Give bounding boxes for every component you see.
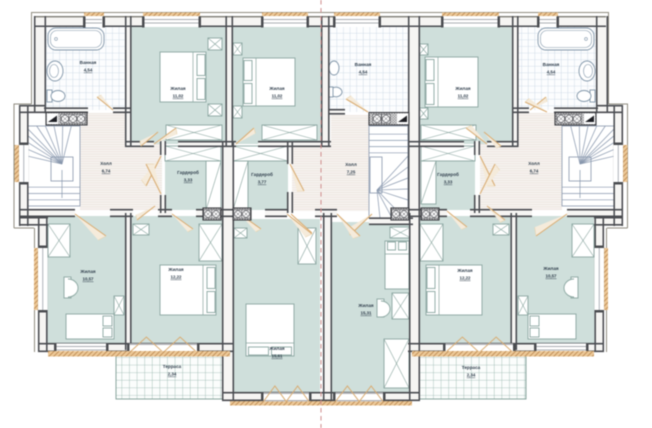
svg-text:Жилая: Жилая xyxy=(542,266,558,271)
svg-text:Жилая: Жилая xyxy=(169,86,185,91)
svg-text:Холл: Холл xyxy=(345,162,357,167)
svg-text:6,74: 6,74 xyxy=(102,169,111,174)
svg-text:Холл: Холл xyxy=(100,161,112,166)
svg-text:Жилая: Жилая xyxy=(167,267,183,272)
svg-text:10,57: 10,57 xyxy=(83,277,95,282)
svg-text:12,22: 12,22 xyxy=(460,276,472,281)
svg-text:2,34: 2,34 xyxy=(467,373,476,378)
svg-text:Жилая: Жилая xyxy=(268,86,284,91)
svg-text:3,77: 3,77 xyxy=(258,180,267,185)
svg-text:Терраса: Терраса xyxy=(462,365,481,370)
svg-text:Жилая: Жилая xyxy=(357,303,373,308)
svg-text:6,74: 6,74 xyxy=(530,169,539,174)
svg-text:11,02: 11,02 xyxy=(173,94,184,99)
svg-text:3,33: 3,33 xyxy=(444,180,453,185)
svg-text:Жилая: Жилая xyxy=(454,86,470,91)
svg-text:Жилая: Жилая xyxy=(79,269,95,274)
svg-text:15,31: 15,31 xyxy=(361,311,373,316)
svg-text:4,54: 4,54 xyxy=(359,70,368,75)
svg-text:7,25: 7,25 xyxy=(347,170,356,175)
svg-text:11,02: 11,02 xyxy=(458,94,469,99)
svg-text:12,22: 12,22 xyxy=(171,275,183,280)
svg-text:Ванная: Ванная xyxy=(543,62,560,67)
svg-text:4,54: 4,54 xyxy=(547,70,556,75)
svg-text:Жилая: Жилая xyxy=(268,346,284,351)
svg-text:Гардероб: Гардероб xyxy=(251,171,273,177)
svg-text:Ванная: Ванная xyxy=(355,62,372,67)
svg-text:4,54: 4,54 xyxy=(84,68,93,73)
svg-text:3,33: 3,33 xyxy=(184,178,193,183)
svg-text:2,34: 2,34 xyxy=(168,372,177,377)
svg-text:Жилая: Жилая xyxy=(456,268,472,273)
svg-text:Терраса: Терраса xyxy=(163,364,182,369)
svg-text:Ванная: Ванная xyxy=(80,60,97,65)
svg-text:11,02: 11,02 xyxy=(272,94,283,99)
svg-text:15,61: 15,61 xyxy=(272,354,284,359)
svg-text:10,57: 10,57 xyxy=(546,274,558,279)
svg-text:Гардероб: Гардероб xyxy=(177,169,199,175)
svg-text:Холл: Холл xyxy=(528,161,540,166)
svg-text:Гардероб: Гардероб xyxy=(437,171,459,177)
